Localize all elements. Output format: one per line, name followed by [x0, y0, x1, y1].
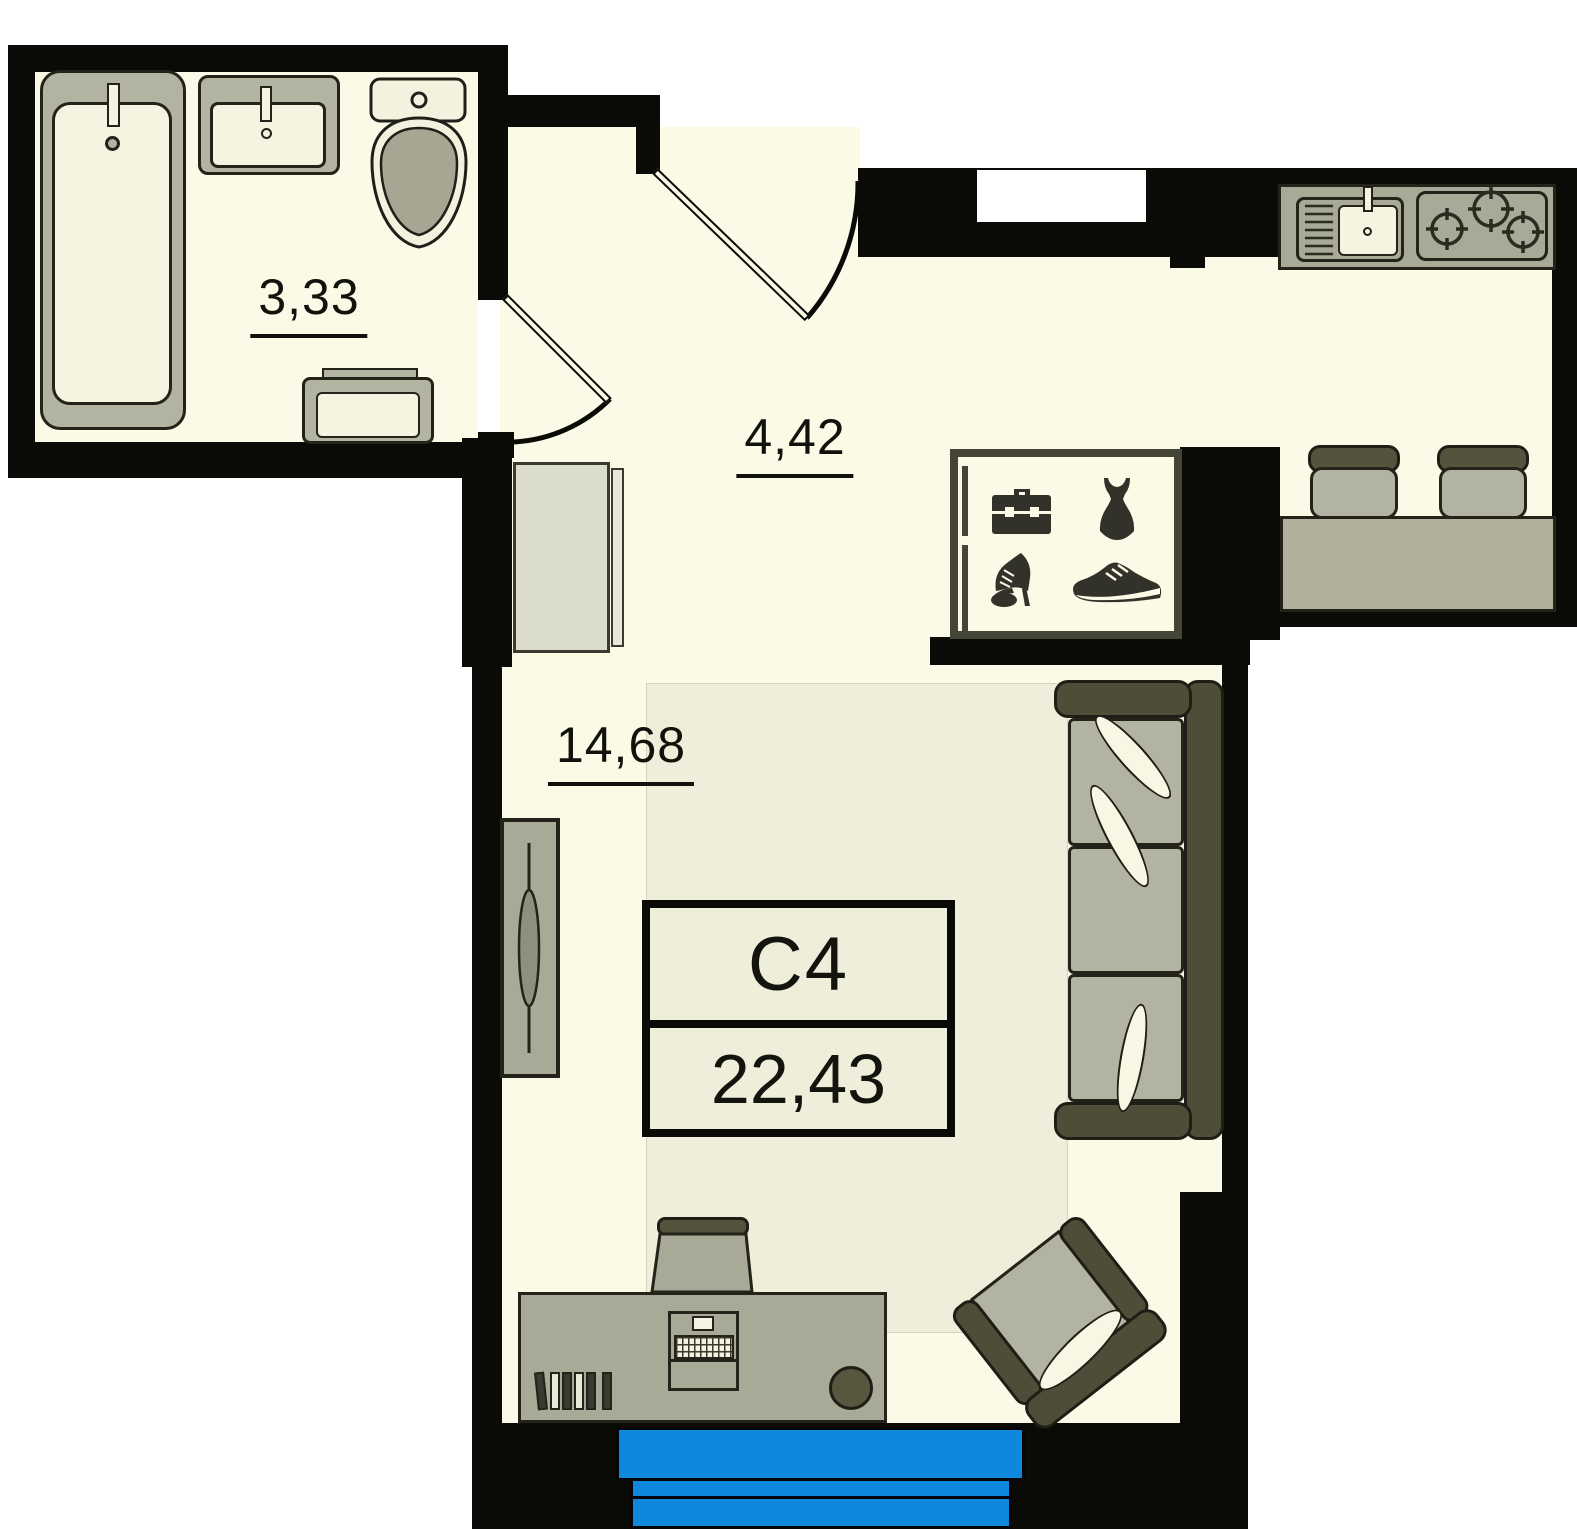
- laptop-keyboard: [674, 1335, 734, 1359]
- bar-counter: [1280, 516, 1556, 612]
- balcony-window-mullion: [632, 1496, 1010, 1499]
- hall-cabinet: [513, 462, 610, 653]
- kitchen-sink-drain: [1363, 227, 1372, 236]
- bathroom-area-label: 3,33: [250, 268, 367, 338]
- bathtub-drain: [105, 136, 120, 151]
- wall: [472, 667, 502, 1529]
- wardrobe-door-track: [962, 545, 968, 632]
- wall: [8, 45, 508, 72]
- wall: [462, 438, 512, 667]
- balcony-window: [616, 1427, 1025, 1481]
- book: [562, 1372, 572, 1410]
- wall: [1180, 447, 1280, 640]
- laptop-hinge: [670, 1359, 737, 1362]
- wall: [1222, 637, 1248, 1197]
- wall: [636, 127, 660, 174]
- wall: [930, 637, 1250, 665]
- window: [977, 170, 1146, 222]
- book: [550, 1372, 560, 1410]
- desk-chair-back: [657, 1217, 749, 1236]
- wall: [8, 442, 472, 478]
- laptop-screen: [692, 1316, 714, 1331]
- balcony-window-step: [630, 1478, 1012, 1529]
- unit-label: С4: [650, 908, 947, 1020]
- book: [574, 1372, 584, 1410]
- wall: [1170, 257, 1205, 268]
- bathtub-faucet: [107, 83, 120, 127]
- tv-stand: [500, 818, 560, 1078]
- washbasin-faucet: [260, 86, 272, 122]
- sofa-back: [1184, 680, 1224, 1140]
- wall: [8, 45, 35, 478]
- book: [586, 1372, 596, 1410]
- unit-box-divider: [650, 1020, 947, 1028]
- bar-stool-seat: [1310, 467, 1398, 519]
- hall-cabinet-door: [611, 468, 624, 647]
- hallway-area-label: 4,42: [736, 408, 853, 478]
- unit-info-box: С4 22,43: [642, 900, 955, 1137]
- wardrobe-door-track: [962, 466, 968, 536]
- bar-stool-seat: [1439, 467, 1527, 519]
- sofa-armrest: [1054, 680, 1192, 718]
- stove: [1416, 191, 1548, 261]
- wardrobe: [950, 449, 1182, 639]
- washing-machine-lid: [316, 392, 420, 438]
- living-room-area-label: 14,68: [548, 716, 694, 786]
- floor-plan: 3,33 4,42 14,68 С4 22,43: [0, 0, 1577, 1529]
- desk-stool: [829, 1366, 873, 1410]
- book: [602, 1372, 612, 1410]
- wall: [480, 95, 660, 127]
- washbasin-drain: [261, 128, 272, 139]
- unit-area: 22,43: [650, 1028, 947, 1129]
- wall: [478, 45, 508, 300]
- kitchen-faucet: [1363, 186, 1373, 212]
